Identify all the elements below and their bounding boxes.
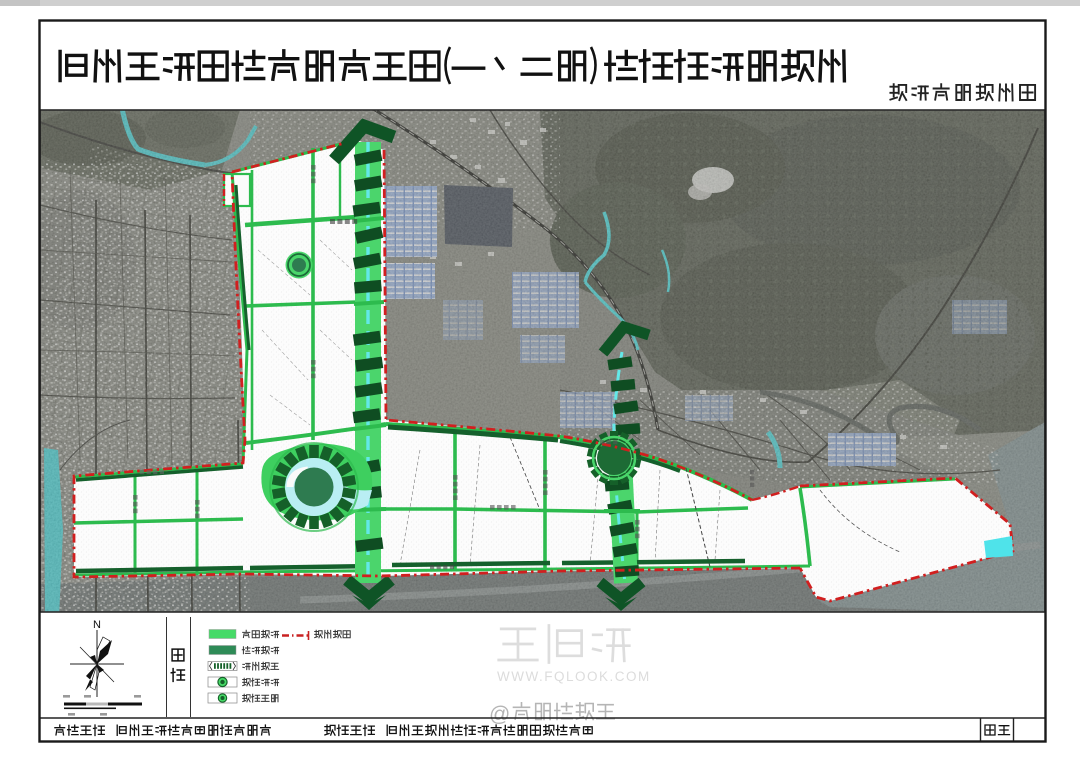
svg-text:WWW.FQLOOK.COM: WWW.FQLOOK.COM	[497, 669, 651, 684]
svg-text:@: @	[489, 703, 510, 726]
svg-text:N: N	[93, 619, 101, 631]
